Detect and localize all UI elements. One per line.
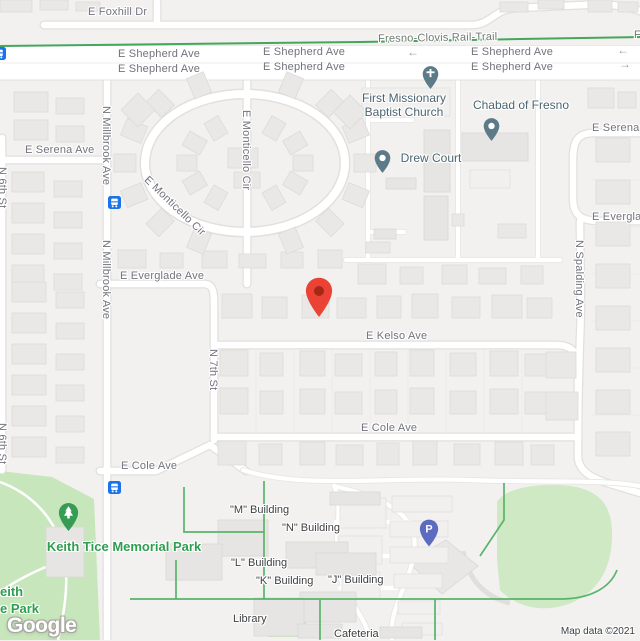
- house-footprint: [12, 406, 46, 426]
- street-label-shepherd-c-2: E Shepherd Ave: [263, 61, 345, 73]
- one-way-arrow-right-2: →: [619, 59, 631, 69]
- house-footprint: [220, 388, 248, 414]
- poi-label-drew-court: Drew Court: [341, 151, 521, 165]
- house-footprint: [358, 264, 386, 284]
- house-footprint: [12, 172, 44, 192]
- house-footprint: [56, 447, 84, 463]
- street-label-shepherd-w-1: E Shepherd Ave: [118, 48, 200, 60]
- house-footprint: [56, 354, 84, 370]
- street-label-shepherd-w-2: E Shepherd Ave: [118, 63, 200, 75]
- drew-pin[interactable]: [374, 149, 391, 179]
- house-footprint: [521, 266, 543, 284]
- house-footprint: [337, 298, 366, 318]
- poi-label-library: Library: [233, 613, 267, 626]
- house-footprint: [12, 282, 46, 302]
- house-footprint: [300, 442, 325, 465]
- house-footprint: [12, 313, 46, 333]
- house-footprint: [0, 0, 32, 12]
- house-footprint: [336, 445, 363, 465]
- house-footprint: [56, 126, 84, 142]
- house-footprint: [375, 352, 397, 376]
- house-footprint: [596, 432, 630, 456]
- poi-label-keith-tice-park: Keith Tice Memorial Park: [34, 538, 214, 555]
- building-footprint: [300, 592, 356, 622]
- house-footprint: [318, 250, 342, 268]
- house-footprint: [410, 388, 434, 414]
- house-footprint: [54, 212, 82, 228]
- house-footprint: [12, 203, 44, 223]
- poi-label-park-clipped: eithe Park: [0, 583, 39, 617]
- street-label-monticello-v: E Monticello Cir: [240, 110, 252, 190]
- house-footprint: [40, 0, 68, 10]
- house-footprint: [498, 224, 526, 238]
- house-footprint: [300, 351, 325, 376]
- house-footprint: [450, 353, 476, 376]
- parking-lot: [392, 496, 452, 512]
- street-label-kelso: E Kelso Ave: [366, 330, 427, 342]
- poi-label-k-building: "K" Building: [256, 575, 313, 588]
- street-label-rail-trail-2: Fresno-Clovis Rail-Trail: [634, 29, 640, 41]
- street-label-cole-e: E Cole Ave: [361, 422, 417, 434]
- house-footprint: [377, 443, 399, 465]
- poi-label-l-building: "L" Building: [231, 557, 287, 570]
- house-footprint: [335, 354, 362, 376]
- house-footprint: [300, 389, 325, 414]
- house-footprint: [54, 181, 82, 197]
- street-label-millbrook-1: N Millbrook Ave: [100, 106, 112, 185]
- house-footprint: [412, 294, 438, 318]
- street-label-everglade-e: E Everglade Ave: [592, 211, 640, 223]
- svg-text:P: P: [425, 524, 432, 536]
- street-label-n7th: N 7th St: [207, 349, 219, 390]
- parking-lot: [398, 601, 440, 614]
- house-footprint: [596, 348, 630, 372]
- transit-station-icon-0[interactable]: [108, 196, 121, 209]
- house-footprint: [14, 120, 48, 140]
- street-label-everglade-w: E Everglade Ave: [120, 270, 204, 282]
- house-footprint: [413, 441, 437, 465]
- one-way-arrow-left-0: ←: [407, 47, 419, 57]
- google-logo[interactable]: Google: [7, 614, 76, 638]
- street-label-shepherd-c-1: E Shepherd Ave: [263, 46, 345, 58]
- building-footprint: [380, 627, 422, 638]
- house-footprint: [546, 392, 578, 420]
- transit-station-icon-2[interactable]: [0, 47, 6, 60]
- house-footprint: [220, 350, 248, 376]
- map-attribution: Map data ©2021: [561, 626, 635, 637]
- poi-label-cafeteria: Cafeteria: [334, 628, 379, 641]
- house-footprint: [538, 0, 564, 9]
- house-footprint: [54, 243, 82, 259]
- house-footprint: [12, 344, 46, 364]
- house-footprint: [454, 444, 480, 465]
- location-marker[interactable]: [305, 277, 333, 323]
- street-label-millbrook-2: N Millbrook Ave: [100, 240, 112, 319]
- house-footprint: [366, 242, 390, 253]
- house-footprint: [56, 292, 84, 308]
- house-footprint: [377, 296, 401, 318]
- house-footprint: [495, 442, 523, 465]
- house-footprint: [293, 155, 313, 171]
- one-way-arrow-left-1: ←: [617, 45, 629, 55]
- street-label-serena-w: E Serena Ave: [25, 144, 94, 156]
- house-footprint: [56, 98, 84, 114]
- house-footprint: [12, 437, 46, 457]
- house-footprint: [118, 250, 146, 268]
- building-footprint: [218, 520, 268, 556]
- house-footprint: [375, 390, 397, 414]
- building-footprint: [316, 553, 376, 575]
- house-footprint: [177, 155, 197, 171]
- street-label-n6th-1: N 6th St: [0, 167, 8, 208]
- building-footprint: [424, 196, 448, 240]
- house-footprint: [596, 180, 630, 204]
- house-footprint: [596, 222, 630, 246]
- house-footprint: [14, 92, 48, 112]
- street-label-shepherd-e-2: E Shepherd Ave: [471, 61, 553, 73]
- house-footprint: [56, 416, 84, 432]
- house-footprint: [490, 351, 518, 376]
- house-footprint: [596, 138, 630, 162]
- street-label-n6th-2: N 6th St: [0, 423, 8, 464]
- house-footprint: [546, 352, 576, 378]
- house-footprint: [452, 214, 464, 226]
- church-pin[interactable]: [422, 65, 439, 95]
- house-footprint: [596, 390, 630, 414]
- poi-label-chabad: Chabad of Fresno: [431, 98, 611, 112]
- house-footprint: [114, 154, 136, 172]
- parking-pin[interactable]: P: [419, 518, 439, 553]
- house-footprint: [588, 0, 612, 12]
- house-footprint: [525, 392, 548, 414]
- chabad-pin[interactable]: [483, 117, 500, 147]
- house-footprint: [239, 254, 266, 268]
- parking-lot: [470, 170, 510, 188]
- house-footprint: [618, 2, 638, 12]
- house-footprint: [400, 267, 423, 284]
- house-footprint: [490, 389, 518, 414]
- house-footprint: [218, 441, 246, 465]
- house-footprint: [56, 385, 84, 401]
- house-footprint: [12, 234, 44, 254]
- house-footprint: [450, 391, 476, 414]
- house-footprint: [281, 252, 303, 268]
- building-footprint: [386, 178, 416, 189]
- house-footprint: [525, 354, 548, 376]
- house-footprint: [222, 294, 252, 318]
- house-footprint: [260, 391, 283, 414]
- street-label-rail-trail: Fresno-Clovis Rail-Trail: [378, 31, 497, 45]
- house-footprint: [618, 92, 636, 108]
- building-footprint: [374, 229, 396, 239]
- transit-station-icon-1[interactable]: [108, 481, 121, 494]
- street-label-cole-w: E Cole Ave: [121, 460, 177, 472]
- house-footprint: [479, 268, 506, 284]
- house-footprint: [410, 350, 434, 376]
- street-label-serena-e: E Serena Ave: [592, 122, 640, 134]
- poi-label-j-building: "J" Building: [328, 574, 384, 587]
- house-footprint: [596, 306, 630, 330]
- house-footprint: [527, 298, 552, 318]
- park-tree-pin[interactable]: [58, 501, 79, 538]
- house-footprint: [56, 323, 84, 339]
- house-footprint: [452, 297, 480, 318]
- street-label-shepherd-e-1: E Shepherd Ave: [471, 46, 553, 58]
- house-footprint: [260, 353, 283, 376]
- house-footprint: [442, 265, 467, 284]
- house-footprint: [12, 375, 46, 395]
- house-footprint: [262, 297, 287, 318]
- house-footprint: [160, 253, 183, 268]
- building-footprint: [330, 492, 380, 505]
- house-footprint: [596, 264, 630, 288]
- house-footprint: [202, 251, 227, 268]
- parking-lot: [394, 574, 442, 588]
- house-footprint: [259, 444, 282, 465]
- house-footprint: [335, 392, 362, 414]
- poi-label-n-building: "N" Building: [282, 522, 340, 535]
- poi-label-m-building: "M" Building: [230, 504, 289, 517]
- house-footprint: [531, 445, 554, 465]
- street-label-foxhill: E Foxhill Dr: [88, 6, 147, 18]
- street-label-spalding: N Spalding Ave: [573, 240, 585, 318]
- map-canvas[interactable]: E Foxhill DrFresno-Clovis Rail-TrailFres…: [0, 0, 640, 640]
- house-footprint: [500, 2, 528, 12]
- house-footprint: [492, 295, 522, 318]
- house-footprint: [54, 274, 82, 290]
